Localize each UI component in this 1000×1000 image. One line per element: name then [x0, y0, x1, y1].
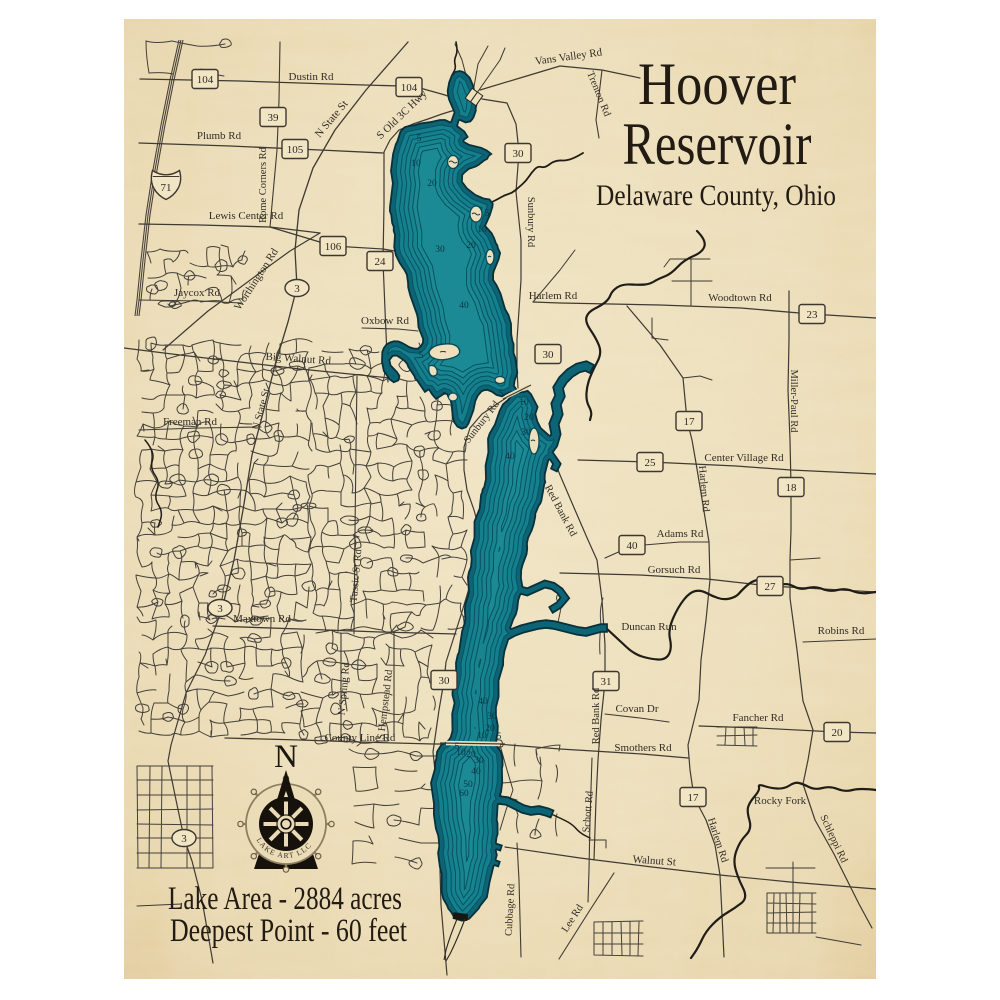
svg-text:Adams Rd: Adams Rd — [657, 528, 704, 540]
svg-text:Smothers Rd: Smothers Rd — [614, 742, 672, 754]
svg-text:Harlem Rd: Harlem Rd — [529, 290, 578, 302]
svg-text:3: 3 — [217, 603, 223, 615]
svg-text:40: 40 — [459, 301, 469, 311]
svg-text:10: 10 — [477, 731, 487, 741]
svg-text:60: 60 — [459, 789, 469, 799]
svg-text:25: 25 — [645, 457, 657, 469]
svg-text:Duncan Run: Duncan Run — [621, 621, 677, 633]
svg-text:Lake Area - 2884 acres: Lake Area - 2884 acres — [168, 881, 402, 917]
svg-text:30: 30 — [435, 245, 445, 255]
svg-text:5: 5 — [499, 389, 504, 399]
svg-text:20: 20 — [466, 241, 476, 251]
svg-text:Freeman Rd: Freeman Rd — [163, 416, 218, 428]
svg-text:Miller-Paul Rd: Miller-Paul Rd — [788, 369, 799, 433]
svg-text:17: 17 — [688, 792, 700, 804]
svg-text:Red Bank Rd: Red Bank Rd — [591, 687, 602, 744]
svg-text:10: 10 — [411, 159, 421, 169]
svg-text:3: 3 — [294, 283, 300, 295]
svg-text:20: 20 — [427, 179, 437, 189]
svg-text:10: 10 — [477, 225, 487, 235]
svg-text:106: 106 — [325, 241, 342, 253]
svg-text:5: 5 — [417, 134, 422, 144]
svg-text:30: 30 — [487, 712, 497, 722]
svg-text:18: 18 — [786, 482, 798, 494]
svg-text:Delaware County, Ohio: Delaware County, Ohio — [596, 179, 836, 212]
svg-text:71: 71 — [161, 182, 172, 194]
svg-text:Covan Dr: Covan Dr — [615, 703, 658, 715]
svg-text:30: 30 — [521, 428, 531, 438]
svg-text:39: 39 — [268, 112, 280, 124]
svg-text:23: 23 — [807, 309, 819, 321]
svg-text:40: 40 — [627, 540, 639, 552]
svg-text:20: 20 — [524, 413, 534, 423]
svg-text:Robins Rd: Robins Rd — [818, 625, 865, 637]
svg-text:27: 27 — [765, 581, 777, 593]
svg-text:Gorsuch Rd: Gorsuch Rd — [648, 564, 701, 576]
svg-text:10: 10 — [519, 398, 529, 408]
svg-text:40: 40 — [505, 452, 515, 462]
svg-text:40: 40 — [478, 697, 488, 707]
svg-text:5: 5 — [497, 732, 502, 742]
svg-text:30: 30 — [543, 349, 555, 361]
svg-text:Maxtown Rd: Maxtown Rd — [233, 613, 291, 625]
svg-text:Center Village Rd: Center Village Rd — [704, 452, 784, 464]
svg-text:Lewis Center Rd: Lewis Center Rd — [209, 210, 284, 222]
svg-text:30: 30 — [513, 148, 525, 160]
svg-text:County Line Rd: County Line Rd — [325, 732, 396, 744]
svg-text:10: 10 — [456, 748, 466, 758]
svg-text:5: 5 — [419, 351, 424, 361]
svg-text:Rocky Fork: Rocky Fork — [754, 795, 807, 807]
svg-text:30: 30 — [439, 675, 451, 687]
svg-text:Hoover: Hoover — [638, 51, 796, 117]
svg-text:Dustin Rd: Dustin Rd — [289, 71, 334, 83]
svg-text:24: 24 — [375, 256, 387, 268]
svg-text:Deepest Point - 60 feet: Deepest Point - 60 feet — [170, 913, 407, 949]
svg-text:N: N — [274, 739, 298, 775]
svg-text:31: 31 — [601, 676, 612, 688]
svg-text:5: 5 — [485, 209, 490, 219]
svg-text:104: 104 — [401, 82, 418, 94]
svg-text:Sunbury Rd: Sunbury Rd — [525, 197, 536, 248]
svg-text:20: 20 — [832, 727, 844, 739]
svg-text:17: 17 — [684, 416, 696, 428]
svg-text:Oxbow Rd: Oxbow Rd — [361, 315, 409, 327]
svg-text:105: 105 — [287, 144, 304, 156]
svg-text:Fancher Rd: Fancher Rd — [732, 712, 784, 724]
svg-text:Reservoir: Reservoir — [623, 111, 812, 177]
svg-text:Plumb Rd: Plumb Rd — [197, 130, 242, 142]
svg-text:30: 30 — [474, 756, 484, 766]
svg-text:Jaycox Rd: Jaycox Rd — [174, 287, 221, 299]
svg-text:3: 3 — [181, 833, 187, 845]
svg-text:104: 104 — [197, 74, 214, 86]
svg-text:40: 40 — [471, 767, 481, 777]
svg-text:Woodtown Rd: Woodtown Rd — [708, 292, 772, 304]
